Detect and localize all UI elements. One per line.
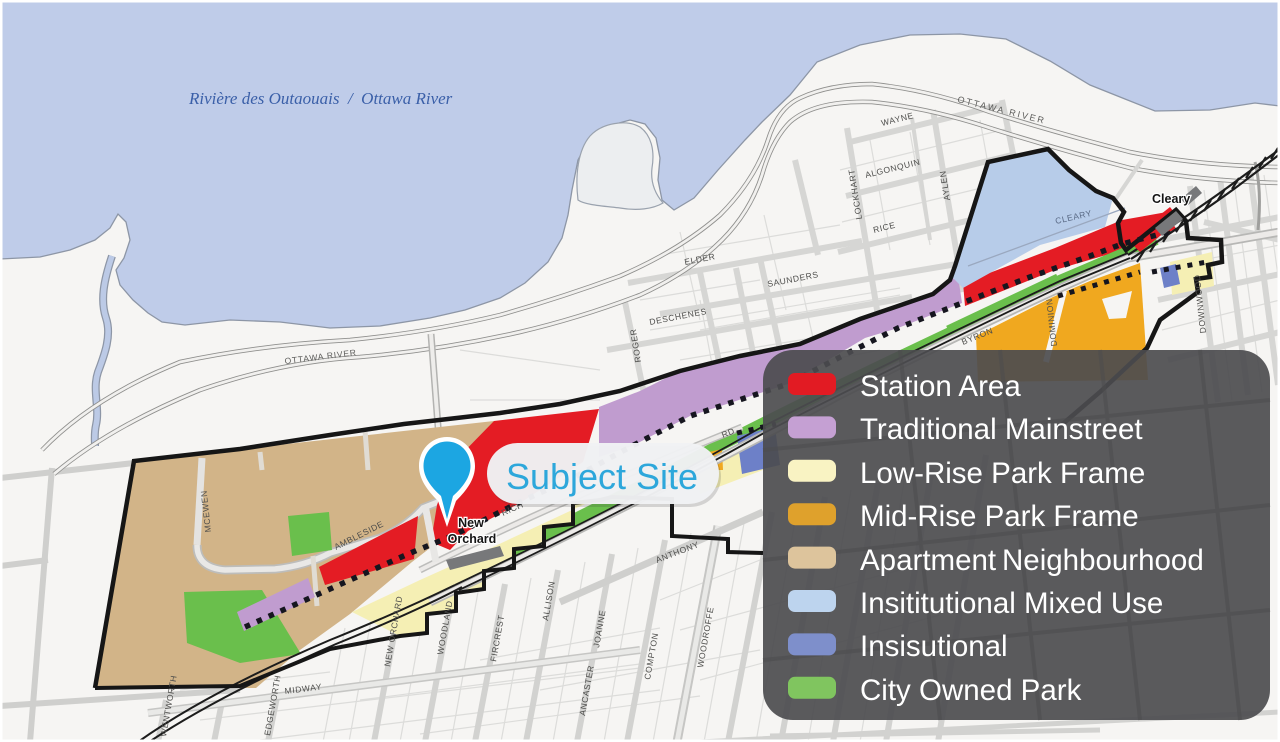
svg-text:Traditional Mainstreet: Traditional Mainstreet	[860, 413, 1143, 446]
svg-text:Insisutional: Insisutional	[860, 630, 1008, 663]
svg-text:Rivière des Outaouais / Otta: Rivière des Outaouais / Ottawa River	[188, 89, 453, 108]
svg-text:Station Area: Station Area	[860, 370, 1021, 403]
svg-text:Low-Rise Park Frame: Low-Rise Park Frame	[860, 457, 1145, 490]
svg-text:Orchard: Orchard	[448, 532, 497, 546]
svg-text:Insititutional Mixed Use: Insititutional Mixed Use	[860, 587, 1163, 620]
svg-text:Cleary: Cleary	[1152, 192, 1190, 206]
svg-text:Apartment Neighbourhood: Apartment Neighbourhood	[860, 544, 1204, 577]
svg-text:City Owned Park: City Owned Park	[860, 674, 1082, 707]
svg-text:New: New	[458, 516, 484, 530]
svg-text:Mid-Rise Park Frame: Mid-Rise Park Frame	[860, 500, 1139, 533]
svg-text:Subject Site: Subject Site	[506, 456, 698, 497]
